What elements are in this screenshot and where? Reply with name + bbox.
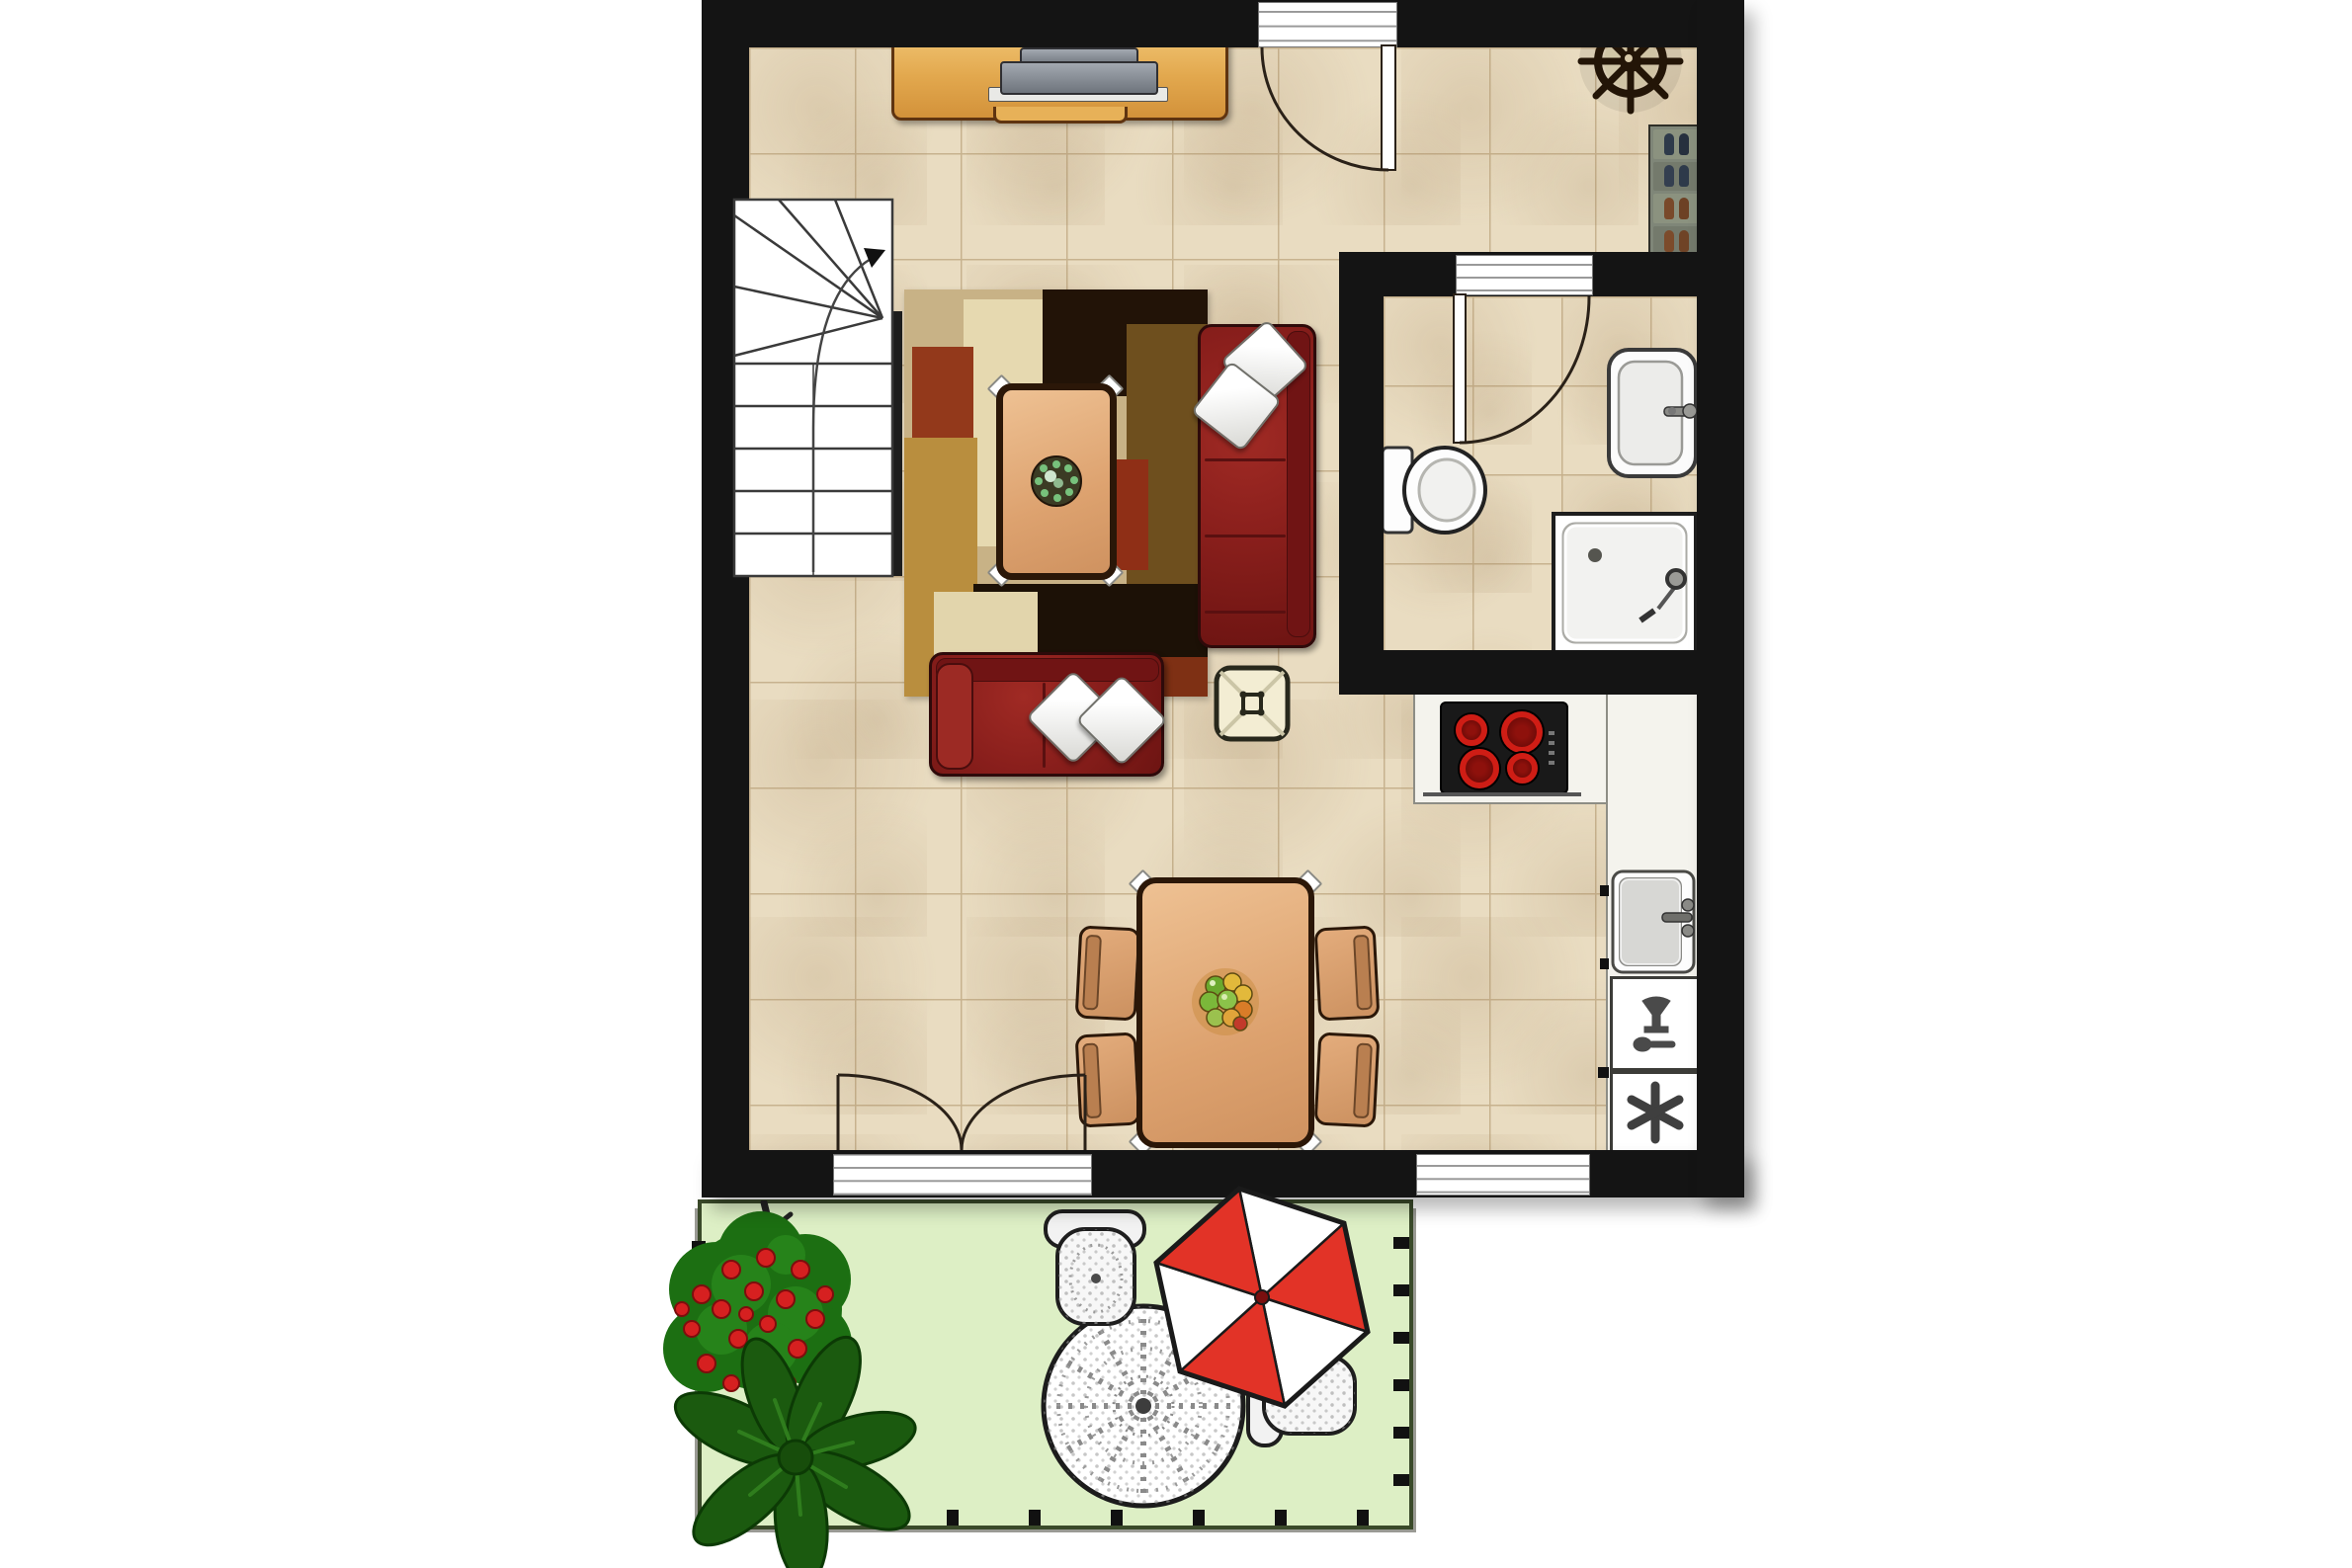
shoe	[1664, 133, 1674, 155]
fence-tick	[1393, 1284, 1409, 1296]
shower	[1552, 512, 1698, 654]
shoe-rack-shelf	[1653, 162, 1699, 192]
wall-right	[1697, 0, 1744, 1197]
entry-door-threshold	[1258, 2, 1397, 47]
bathroom-door-threshold	[1456, 255, 1593, 295]
dishwasher-icon	[1613, 979, 1698, 1068]
shoe	[1679, 230, 1689, 252]
sofa-seam	[1205, 535, 1286, 537]
rug-patch	[912, 347, 973, 438]
fence-tick	[1393, 1237, 1409, 1249]
fruit-bowl	[1186, 962, 1265, 1041]
dining-chair	[1075, 1032, 1141, 1127]
freezer-asterisk-icon	[1613, 1074, 1698, 1151]
dining-table	[1136, 877, 1314, 1148]
parasol	[1136, 1168, 1393, 1427]
cooktop	[1440, 701, 1568, 794]
sofa-seam	[1205, 611, 1286, 614]
counter-tick	[1600, 958, 1609, 969]
burner	[1507, 753, 1538, 784]
chair-back	[1082, 935, 1102, 1011]
burner	[1501, 711, 1543, 753]
shoe	[1679, 133, 1689, 155]
large-plant	[672, 1329, 929, 1568]
chair-back	[1353, 935, 1373, 1011]
sideboard-notch	[993, 107, 1128, 124]
sofa-arm	[936, 663, 973, 770]
fence-tick	[1393, 1474, 1409, 1486]
dining-chair	[1314, 925, 1381, 1021]
dishwasher	[1610, 976, 1701, 1071]
fence-tick	[1393, 1332, 1409, 1344]
shoe-rack-shelf	[1653, 226, 1699, 256]
toilet	[1380, 441, 1490, 539]
fence-tick	[1357, 1510, 1369, 1526]
shoe	[1664, 198, 1674, 219]
floor-plan-page	[0, 0, 2352, 1568]
bathroom-sink	[1607, 348, 1698, 478]
burner	[1460, 749, 1499, 788]
decor-plate	[1030, 454, 1083, 508]
shoe-rack-shelf	[1653, 129, 1699, 159]
chair-back	[1082, 1042, 1102, 1118]
fence-tick	[947, 1510, 959, 1526]
stove-controls	[1549, 731, 1554, 767]
freezer	[1610, 1071, 1701, 1154]
sofa-seam	[1205, 458, 1286, 461]
tv-screen	[1000, 61, 1158, 95]
shoe	[1679, 165, 1689, 187]
coffee-table	[996, 383, 1115, 578]
french-door-threshold	[833, 1154, 1092, 1196]
fence-tick	[1275, 1510, 1287, 1526]
staircase	[729, 196, 912, 583]
bathroom-wall-bottom	[1339, 650, 1697, 695]
burner	[1456, 714, 1487, 746]
fence-tick	[1393, 1379, 1409, 1391]
shoe-rack-shelf	[1653, 194, 1699, 223]
fence-tick	[1393, 1427, 1409, 1439]
counter-lip	[1423, 792, 1581, 796]
shoe	[1664, 230, 1674, 252]
counter-tick	[1598, 1067, 1609, 1078]
bathroom-wall-left	[1339, 252, 1384, 695]
dining-chair	[1075, 925, 1141, 1021]
counter-tick	[1600, 885, 1609, 896]
ottoman	[1213, 664, 1292, 743]
wall-top	[702, 0, 1744, 47]
window	[1416, 1154, 1590, 1196]
wall-left	[702, 0, 749, 1197]
shoe	[1679, 198, 1689, 219]
chair-back	[1353, 1042, 1373, 1118]
dining-chair	[1314, 1032, 1381, 1127]
shoe	[1664, 165, 1674, 187]
kitchen-sink	[1611, 869, 1696, 974]
